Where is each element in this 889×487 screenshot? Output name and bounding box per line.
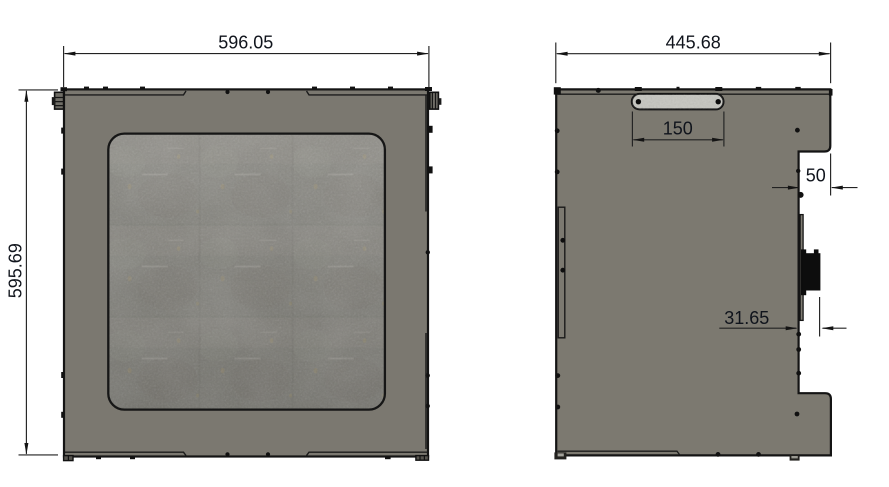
svg-text:445.68: 445.68	[666, 32, 721, 52]
svg-text:50: 50	[806, 166, 826, 186]
svg-text:150: 150	[663, 119, 693, 139]
svg-text:596.05: 596.05	[218, 32, 273, 52]
svg-text:595.69: 595.69	[6, 243, 26, 298]
svg-text:31.65: 31.65	[724, 308, 769, 328]
